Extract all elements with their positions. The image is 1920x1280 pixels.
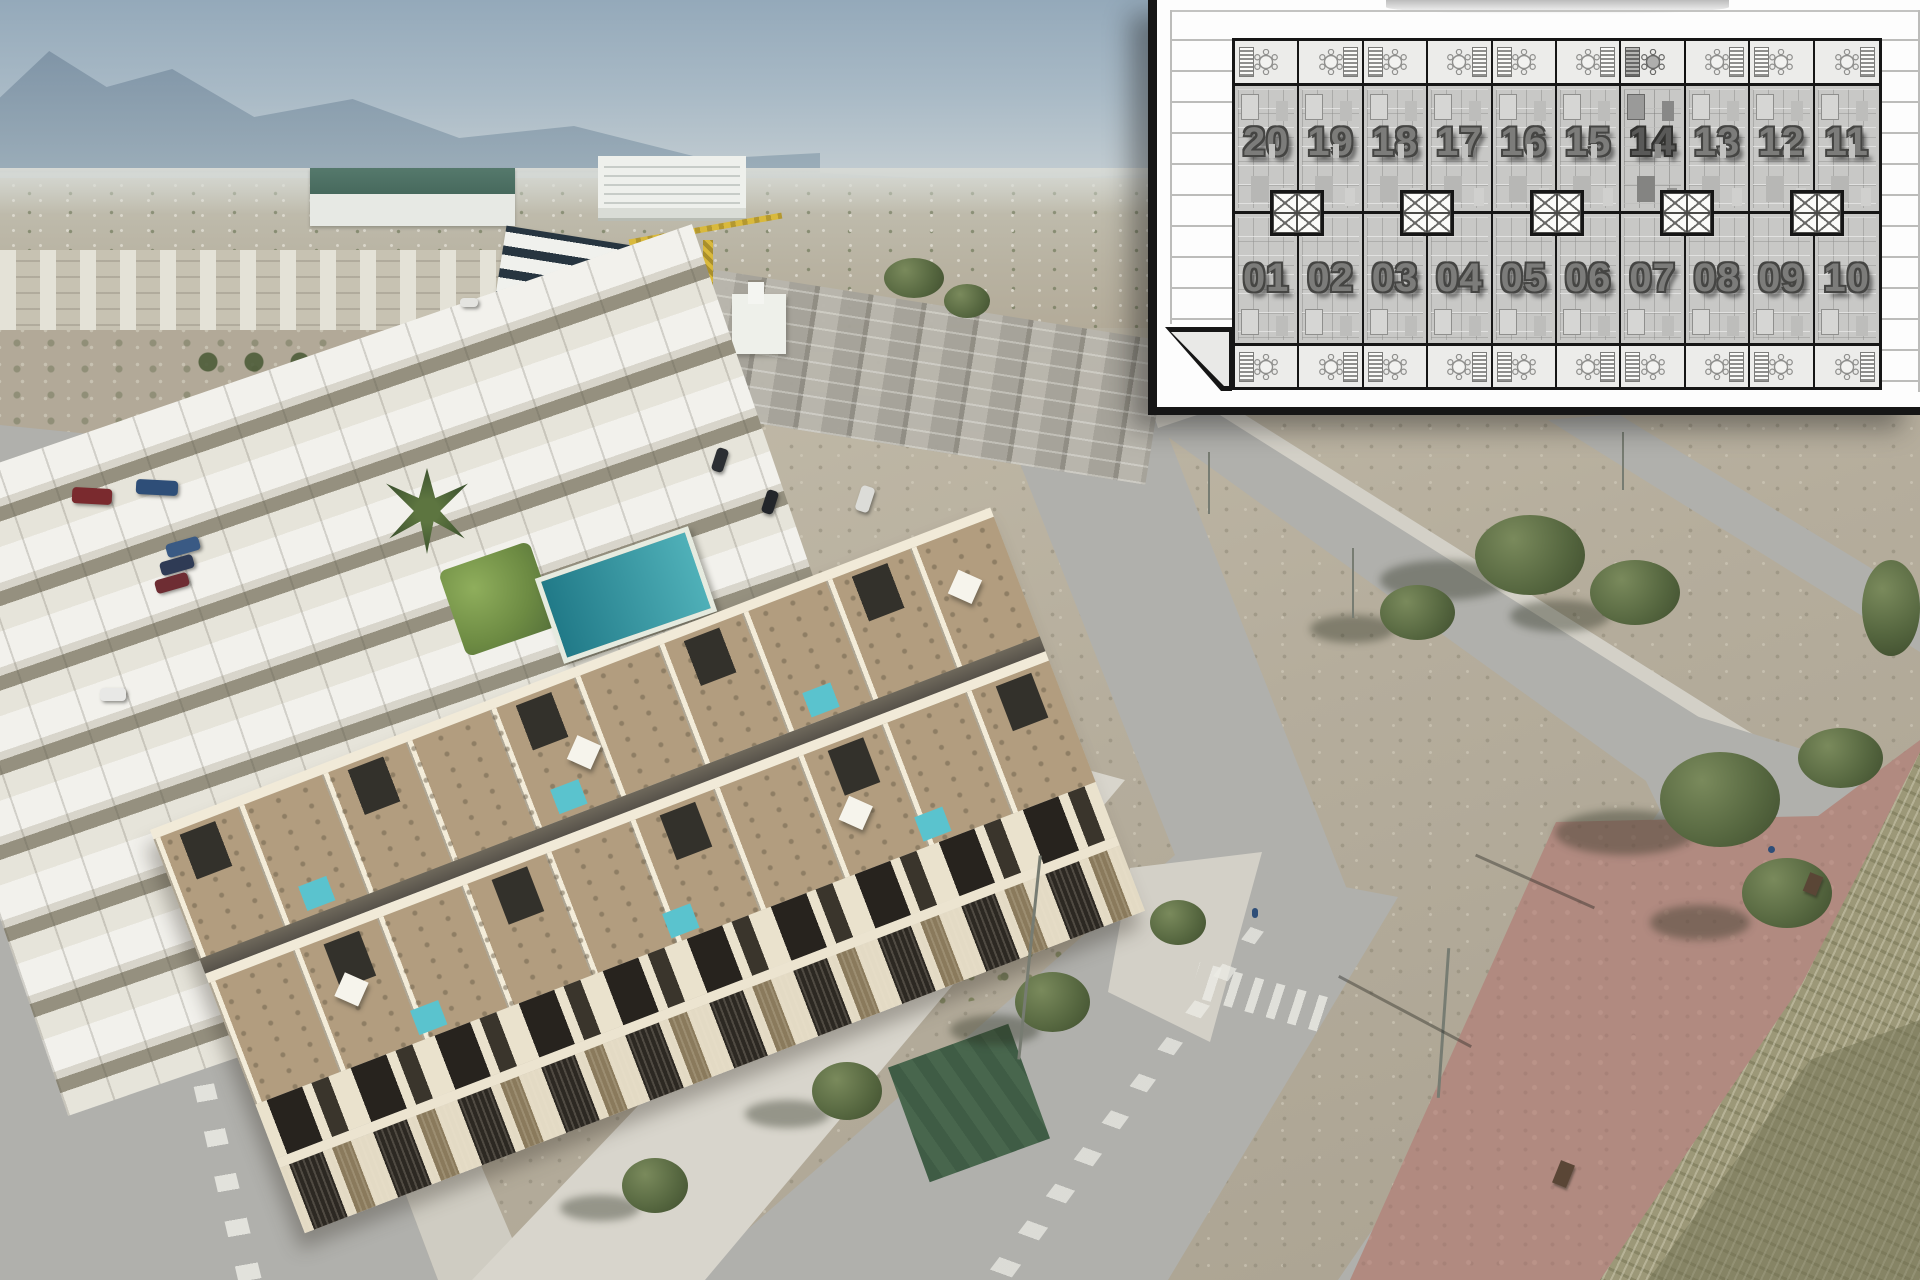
stairs-icon: [1239, 352, 1254, 382]
stairs-icon: [1625, 352, 1640, 382]
site-plan-inset: 20 19 18 17 16 15 14 13 12 11 01 02 03 0…: [1148, 0, 1920, 415]
terrace-table-icon: [1253, 354, 1279, 380]
tree: [1380, 585, 1455, 640]
plan-terrace: [1557, 346, 1621, 387]
person: [1252, 908, 1258, 918]
terrace-table-icon: [1575, 49, 1601, 75]
person: [1768, 846, 1775, 853]
office-building: [598, 156, 746, 221]
warehouse-green-roof: [310, 168, 515, 194]
elevator-shaft-cell: [1297, 193, 1321, 213]
terrace-table-icon: [1834, 49, 1860, 75]
plan-terrace: [1493, 41, 1557, 83]
lamppost: [1208, 452, 1210, 514]
elevator-shaft-cell: [1687, 193, 1711, 213]
tree: [1862, 560, 1920, 656]
plan-terrace: [1299, 346, 1363, 387]
plan-sheet: 20 19 18 17 16 15 14 13 12 11 01 02 03 0…: [1157, 0, 1920, 407]
elevator-shaft-cell: [1557, 193, 1581, 213]
terrace-table-icon: [1834, 354, 1860, 380]
elevator-shaft-cell: [1533, 213, 1557, 233]
stairs-icon: [1497, 47, 1512, 77]
tree: [944, 284, 990, 318]
parked-car-red: [72, 487, 113, 505]
terrace-table-icon: [1382, 49, 1408, 75]
street-tree: [812, 1062, 882, 1120]
terrace-table-icon: [1318, 354, 1344, 380]
stairs-icon: [1600, 352, 1615, 382]
elevator-shaft-cell: [1687, 213, 1711, 233]
stairs-icon: [1497, 352, 1512, 382]
parked-car-blue: [136, 479, 179, 496]
stairs-icon: [1239, 47, 1254, 77]
plan-terrace: [1235, 346, 1299, 387]
tree: [1798, 728, 1883, 788]
stairs-icon: [1472, 47, 1487, 77]
plan-terrace: [1815, 41, 1879, 83]
elevator-shaft-cell: [1403, 213, 1427, 233]
elevator-shaft-icon: [1530, 190, 1584, 236]
terrace-table-icon: [1768, 49, 1794, 75]
plan-terrace: [1235, 41, 1299, 83]
plan-terrace: [1621, 346, 1685, 387]
street-tree: [622, 1158, 688, 1213]
plan-terrace: [1621, 41, 1685, 83]
street-tree: [1150, 900, 1206, 945]
plan-terrace: [1557, 41, 1621, 83]
elevator-shaft-icon: [1660, 190, 1714, 236]
stairs-icon: [1860, 47, 1875, 77]
plan-terrace-row-bottom: [1235, 346, 1879, 387]
elevator-shaft-cell: [1793, 193, 1817, 213]
plan-terrace: [1428, 41, 1492, 83]
terrace-table-icon: [1382, 354, 1408, 380]
lamppost: [1352, 548, 1354, 618]
plan-terrace: [1493, 346, 1557, 387]
stairs-icon: [1754, 47, 1769, 77]
small-white-building: [732, 294, 786, 354]
stairs-icon: [1754, 352, 1769, 382]
elevator-shaft-icon: [1270, 190, 1324, 236]
terrace-table-icon: [1446, 354, 1472, 380]
plan-terrace: [1750, 346, 1814, 387]
terrace-table-icon: [1640, 354, 1666, 380]
plan-terrace: [1750, 41, 1814, 83]
tree: [884, 258, 944, 298]
elevator-shaft-cell: [1663, 213, 1687, 233]
stairs-icon: [1343, 352, 1358, 382]
plan-terrace: [1364, 346, 1428, 387]
white-van: [100, 688, 126, 701]
stairs-icon: [1625, 47, 1640, 77]
elevator-shaft-cell: [1817, 193, 1841, 213]
plan-street-line: [1170, 10, 1918, 12]
plan-parking-right: [1882, 10, 1920, 392]
plan-terrace: [1815, 346, 1879, 387]
terrace-table-icon: [1575, 354, 1601, 380]
tree: [1475, 515, 1585, 595]
lamppost: [1622, 432, 1624, 490]
stairs-icon: [1860, 352, 1875, 382]
stairs-icon: [1343, 47, 1358, 77]
tree-shadow: [1650, 905, 1750, 940]
elevator-shaft-icon: [1400, 190, 1454, 236]
terrace-table-icon: [1704, 354, 1730, 380]
plan-terrace: [1686, 41, 1750, 83]
elevator-shaft-cell: [1557, 213, 1581, 233]
tree: [1742, 858, 1832, 928]
plan-terrace: [1364, 41, 1428, 83]
plan-terrace: [1299, 41, 1363, 83]
elevator-shaft-cell: [1817, 213, 1841, 233]
elevator-shaft-cell: [1273, 193, 1297, 213]
screenshot-root: 20 19 18 17 16 15 14 13 12 11 01 02 03 0…: [0, 0, 1920, 1280]
elevator-shaft-cell: [1297, 213, 1321, 233]
terrace-table-icon: [1511, 354, 1537, 380]
terrace-table-icon: [1640, 49, 1666, 75]
plan-terrace-row-top: [1235, 41, 1879, 86]
terrace-table-icon: [1318, 49, 1344, 75]
building-tower: [748, 282, 764, 304]
elevator-shaft-cell: [1273, 213, 1297, 233]
terrace-table-icon: [1253, 49, 1279, 75]
tree: [1660, 752, 1780, 847]
stairs-icon: [1368, 47, 1383, 77]
terrace-table-icon: [1446, 49, 1472, 75]
terrace-table-icon: [1768, 354, 1794, 380]
tree: [1590, 560, 1680, 625]
elevator-shaft-cell: [1427, 193, 1451, 213]
plan-parking-left: [1170, 10, 1234, 324]
stairs-icon: [1368, 352, 1383, 382]
elevator-shaft-icon: [1790, 190, 1844, 236]
elevator-shaft-cell: [1403, 193, 1427, 213]
elevator-shaft-cell: [1533, 193, 1557, 213]
elevator-shaft-cell: [1427, 213, 1451, 233]
elevator-shaft-cell: [1793, 213, 1817, 233]
plan-terrace: [1428, 346, 1492, 387]
car-on-road: [460, 298, 478, 307]
terrace-table-icon: [1704, 49, 1730, 75]
terrace-table-icon: [1511, 49, 1537, 75]
stairs-icon: [1729, 47, 1744, 77]
plan-terrace: [1686, 346, 1750, 387]
stairs-icon: [1729, 352, 1744, 382]
stairs-icon: [1600, 47, 1615, 77]
stairs-icon: [1472, 352, 1487, 382]
elevator-shaft-cell: [1663, 193, 1687, 213]
warehouse: [310, 168, 515, 226]
